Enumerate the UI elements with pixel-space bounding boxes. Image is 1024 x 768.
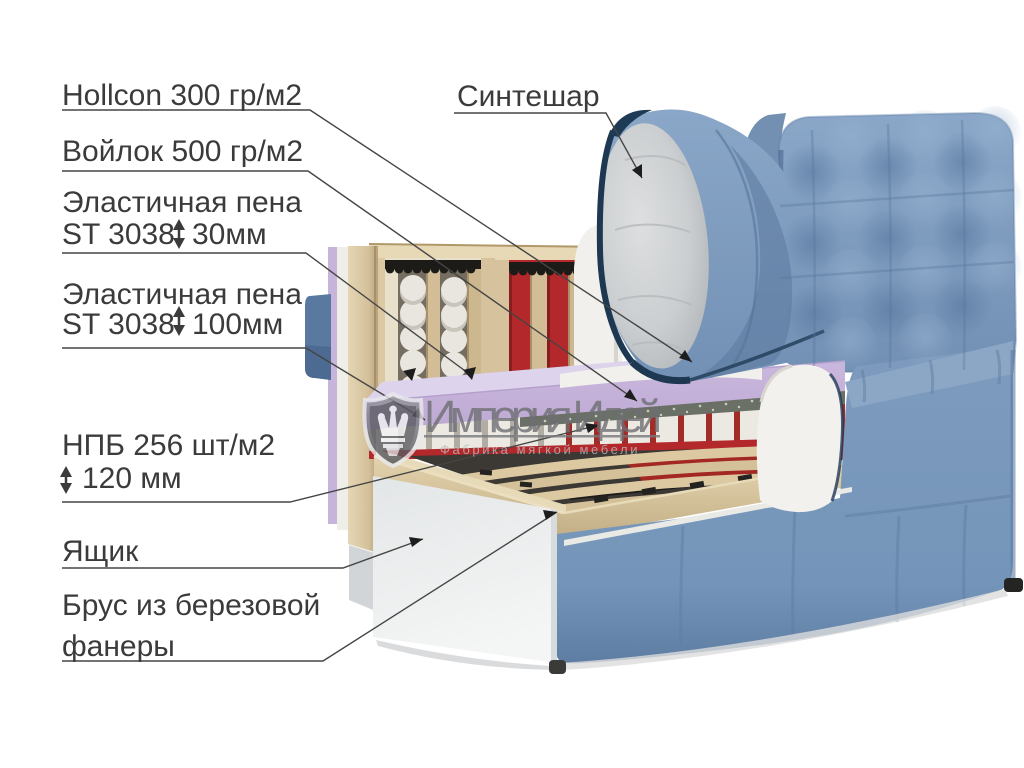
svg-text:Синтешар: Синтешар: [457, 80, 600, 113]
svg-text:Войлок 500 гр/м2: Войлок 500 гр/м2: [62, 135, 303, 168]
svg-text:Hollcon 300 гр/м2: Hollcon 300 гр/м2: [62, 79, 302, 112]
svg-text:120 мм: 120 мм: [82, 462, 182, 495]
svg-text:Ящик: Ящик: [62, 535, 139, 568]
svg-text:Фабрика мягкой мебели: Фабрика мягкой мебели: [440, 442, 640, 457]
svg-text:100мм: 100мм: [192, 308, 283, 341]
svg-text:НПБ 256 шт/м2: НПБ 256 шт/м2: [62, 429, 275, 462]
svg-text:30мм: 30мм: [192, 218, 267, 251]
svg-text:фанеры: фанеры: [62, 630, 175, 663]
svg-text:Империя Идей: Империя Идей: [424, 391, 662, 442]
svg-text:Эластичная пена: Эластичная пена: [62, 278, 302, 311]
svg-text:ST 3038: ST 3038: [62, 308, 175, 341]
svg-text:Брус из березовой: Брус из березовой: [62, 589, 320, 622]
svg-text:ST 3038: ST 3038: [62, 218, 175, 251]
svg-text:Эластичная пена: Эластичная пена: [62, 186, 302, 219]
